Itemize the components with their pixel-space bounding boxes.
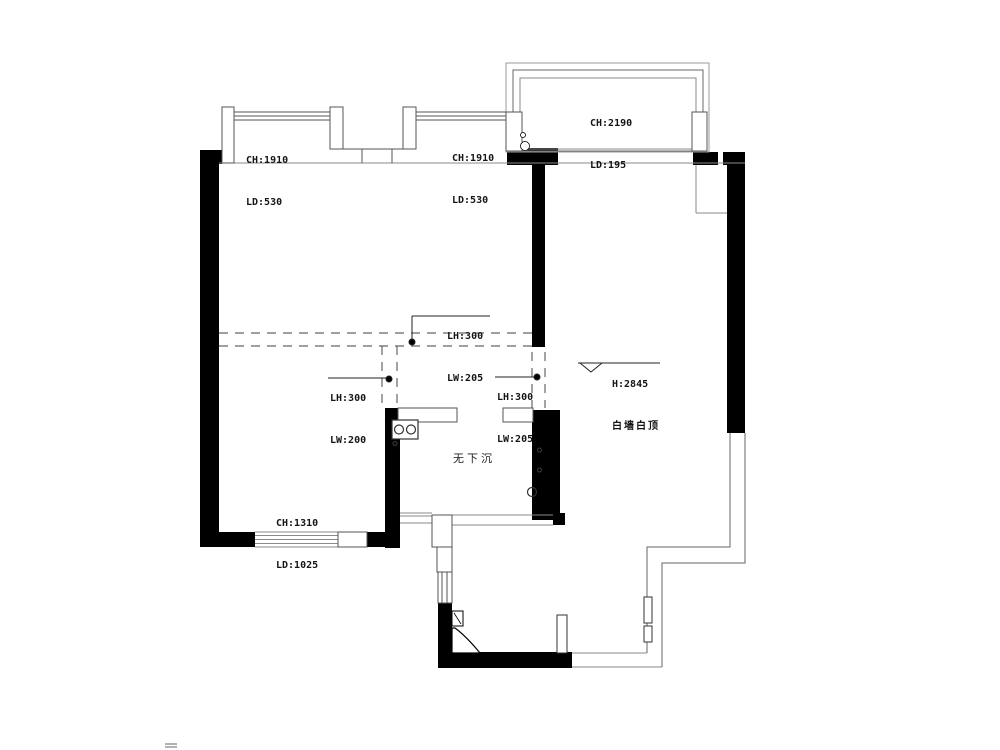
label-beam-top: LH:300 LW:205 <box>447 302 483 414</box>
label-ceiling-height: H:2845 白墙白顶 <box>612 350 660 462</box>
stove-icon <box>392 420 418 446</box>
label-window-right: CH:1910 LD:530 <box>452 124 494 236</box>
wall-interior-living <box>532 163 545 347</box>
label-window-left: CH:1910 LD:530 <box>246 126 288 238</box>
wall-bath-corner-block <box>553 513 565 525</box>
bay-window-right <box>416 112 506 120</box>
label-beam-right: LH:300 LW:205 <box>497 363 533 475</box>
door-swing <box>452 628 480 653</box>
wall-bath-right <box>532 410 560 520</box>
scale-tick-mark <box>165 744 177 747</box>
wall-bottom-entry <box>438 652 572 668</box>
floor-plan-canvas: CH:1910 LD:530 CH:1910 LD:530 CH:2190 LD… <box>0 0 1000 750</box>
entry-door <box>452 611 480 653</box>
label-window-bottom: CH:1310 LD:1025 <box>276 489 318 601</box>
label-no-sunken: 无下沉 <box>453 450 495 466</box>
stepped-outline <box>644 433 745 667</box>
wall-left <box>200 150 219 547</box>
wall-right <box>727 152 745 433</box>
wall-top-corner <box>200 150 222 164</box>
label-beam-left: LH:300 LW:200 <box>330 364 366 476</box>
window-recess <box>343 107 416 163</box>
label-balcony: CH:2190 LD:195 <box>590 89 632 201</box>
wall-bottom-left-b <box>367 532 390 547</box>
wall-bottom-left-a <box>200 532 255 547</box>
